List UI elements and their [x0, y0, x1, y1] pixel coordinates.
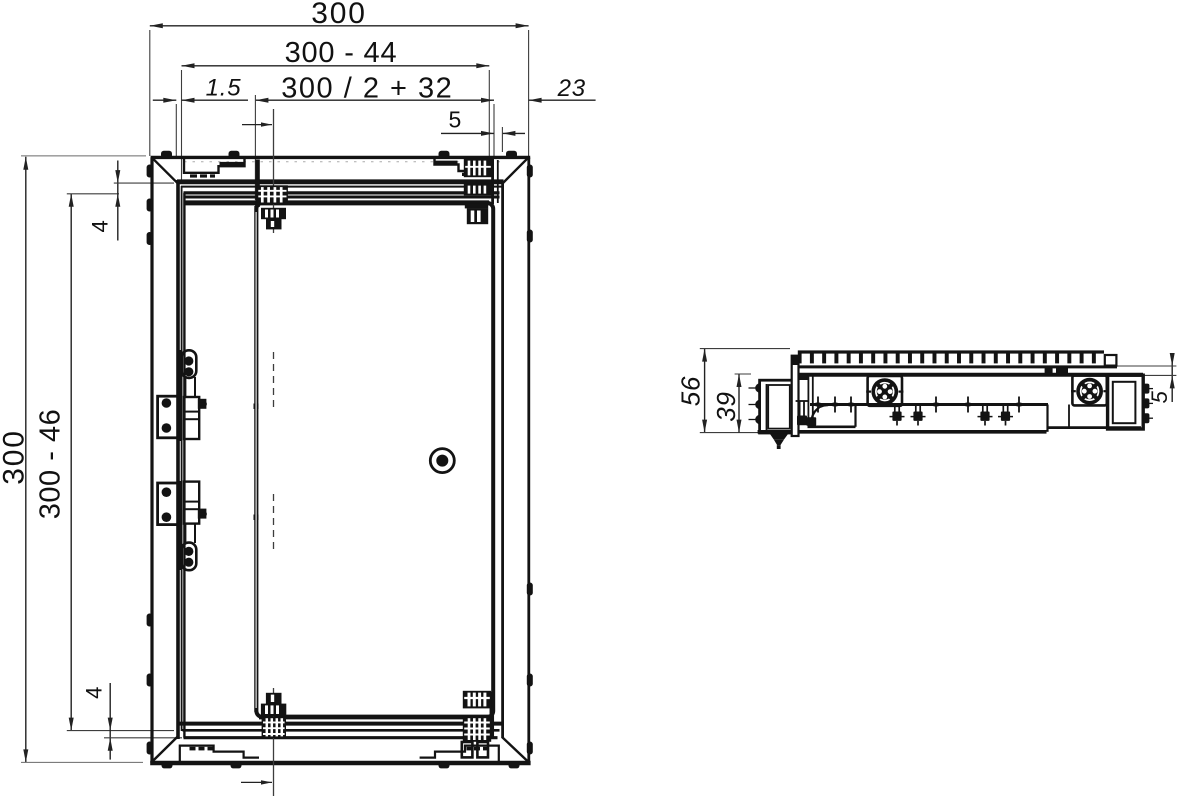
svg-text:39: 39: [711, 391, 741, 422]
svg-text:23: 23: [557, 75, 586, 102]
svg-text:300: 300: [0, 429, 31, 484]
svg-text:4: 4: [82, 686, 107, 699]
svg-text:300 - 46: 300 - 46: [35, 409, 67, 519]
svg-text:5: 5: [1147, 390, 1172, 403]
svg-text:56: 56: [676, 376, 706, 407]
svg-text:300 / 2 + 32: 300 / 2 + 32: [281, 73, 453, 105]
svg-text:300: 300: [311, 0, 366, 30]
svg-text:1.5: 1.5: [206, 75, 242, 102]
svg-text:5: 5: [449, 107, 463, 133]
svg-text:300 - 44: 300 - 44: [285, 37, 398, 69]
svg-text:4: 4: [88, 219, 113, 232]
